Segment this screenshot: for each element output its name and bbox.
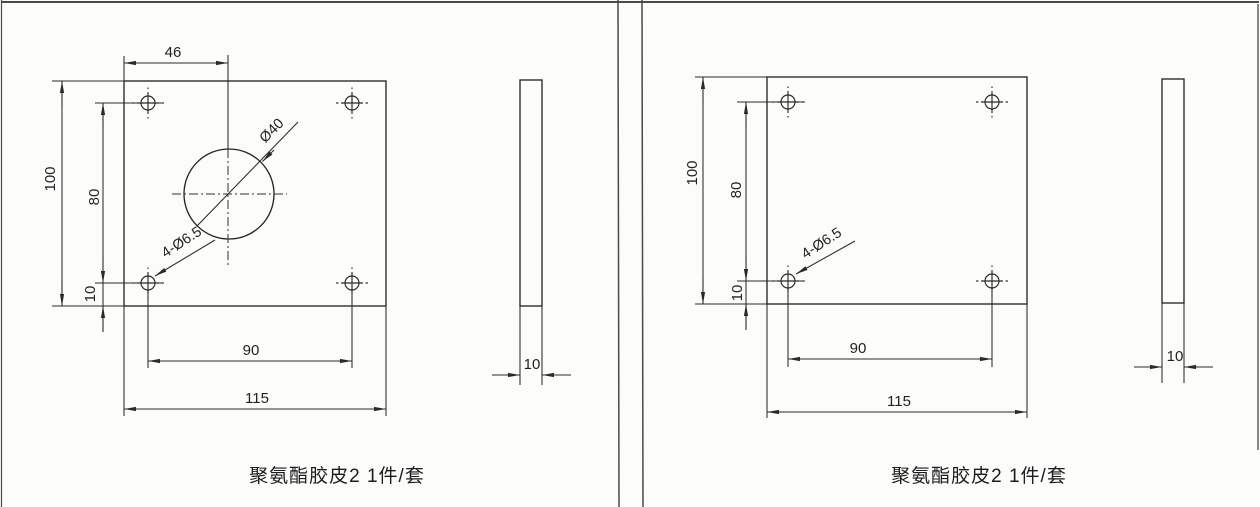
plate-outline — [124, 81, 386, 306]
hole-callout-label: 4-Ø6.5 — [159, 224, 205, 262]
extension-lines — [52, 56, 386, 416]
dim-hole-spacing-vertical-value: 80 — [728, 182, 745, 199]
corner-holes — [772, 87, 1008, 297]
corner-hole — [976, 87, 1008, 118]
diameter-leader-line — [197, 122, 298, 226]
side-view-outline — [520, 80, 542, 306]
drawing-sheet: Ø40 4-Ø6.5 — [0, 0, 1260, 507]
left-drawing: Ø40 4-Ø6.5 — [42, 44, 571, 487]
left-front-view: Ø40 4-Ø6.5 — [42, 44, 386, 416]
dim-hole-spacing-horizontal: 90 — [148, 342, 352, 361]
extension-lines — [695, 77, 1027, 418]
dim-height-value: 100 — [42, 166, 59, 191]
dim-thickness-value: 10 — [1167, 348, 1184, 365]
dim-hole-spacing-vertical-value: 80 — [86, 189, 103, 206]
dim-bottom-margin-value: 10 — [729, 285, 746, 302]
right-drawing: 4-Ø6.5 100 — [684, 77, 1213, 487]
dim-width: 115 — [767, 393, 1027, 412]
panel-divider-right-line — [642, 0, 643, 507]
dim-thickness: 10 — [1134, 348, 1213, 367]
page-borders — [1, 0, 1259, 507]
dim-height: 100 — [684, 77, 703, 304]
hole-callout: 4-Ø6.5 — [155, 224, 215, 276]
hole-callout: 4-Ø6.5 — [796, 225, 855, 274]
dim-width: 115 — [124, 390, 386, 409]
panel-divider-left-line — [618, 0, 619, 507]
drawing-canvas: Ø40 4-Ø6.5 — [0, 0, 1260, 507]
dim-width-value: 115 — [245, 390, 269, 407]
right-side-view: 10 — [1134, 79, 1213, 383]
dim-hole-spacing-horizontal-value: 90 — [850, 340, 867, 357]
dim-hole-spacing-horizontal: 90 — [788, 340, 992, 359]
side-view-outline — [1162, 79, 1184, 303]
corner-holes — [132, 88, 368, 299]
diameter-leader-arrow — [263, 150, 275, 162]
dim-thickness-value: 10 — [524, 356, 541, 373]
dim-width-value: 115 — [887, 393, 911, 410]
hole-callout-label: 4-Ø6.5 — [799, 225, 845, 263]
center-hole-callout-label: Ø40 — [257, 116, 288, 147]
left-side-view: 10 — [492, 80, 571, 385]
dim-height: 100 — [42, 81, 62, 306]
right-caption: 聚氨酯胶皮2 1件/套 — [891, 465, 1067, 487]
corner-hole — [336, 88, 368, 119]
dim-height-value: 100 — [684, 160, 701, 185]
left-caption: 聚氨酯胶皮2 1件/套 — [249, 465, 425, 487]
plate-outline — [767, 77, 1027, 304]
dim-bottom-margin: 10 — [82, 286, 103, 332]
right-front-view: 4-Ø6.5 100 — [684, 77, 1027, 418]
dim-thickness: 10 — [492, 356, 571, 375]
dim-top-width-value: 46 — [165, 44, 182, 61]
dim-hole-spacing-horizontal-value: 90 — [243, 342, 260, 359]
dim-bottom-margin-value: 10 — [82, 286, 99, 303]
dim-top-width: 46 — [124, 44, 228, 63]
dim-bottom-margin: 10 — [729, 285, 746, 330]
